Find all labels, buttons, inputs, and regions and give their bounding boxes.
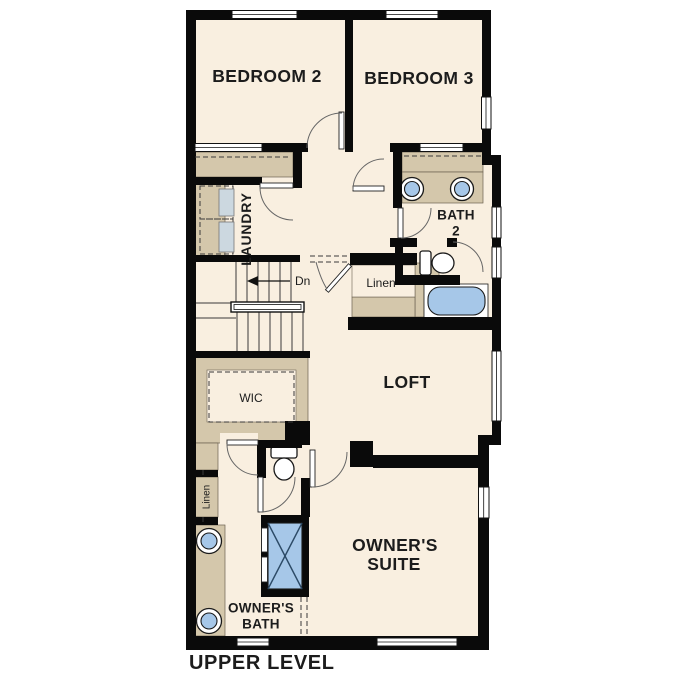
shower-door-panel-2 [262, 557, 268, 582]
wic-label: WIC [239, 391, 263, 405]
wall-loft-top [348, 317, 501, 330]
bedroom3-label: BEDROOM 3 [364, 68, 474, 88]
wall-linen-top [350, 253, 417, 265]
owners-sink-bottom-basin [201, 613, 217, 629]
wall-left [186, 10, 196, 650]
bedroom3-closet [402, 152, 483, 172]
bath2-tub [428, 287, 485, 315]
washer-panel [219, 189, 234, 216]
wall-bath2-nook-bottom [395, 275, 460, 285]
owners-toilet-tank [271, 447, 297, 458]
floorplan-svg: BEDROOM 2 BEDROOM 3 LAUNDRY BATH 2 Linen… [0, 0, 687, 687]
wall-obath-suite [301, 478, 310, 517]
door-leaf-laundry [260, 183, 293, 188]
wall-bath2-left [393, 152, 402, 208]
laundry-label: LAUNDRY [238, 192, 254, 266]
door-leaf-bedroom2 [339, 112, 344, 149]
bath2-toilet-bowl [432, 253, 454, 273]
wall-right-suite [478, 445, 489, 650]
bath2-toilet-tank [420, 251, 431, 275]
wall-bedroom-divider [345, 10, 353, 152]
owners-bath-label-line2: BATH [242, 617, 280, 632]
door-leaf-owners-suite [310, 450, 315, 487]
linen-hall-wall-bottom [352, 297, 415, 317]
wall-toilet-nook-top [266, 440, 302, 448]
wall-linen-owners-bottom [195, 517, 218, 525]
wall-bed3-bottom-left [390, 143, 420, 152]
owners-sink-top-basin [201, 533, 217, 549]
door-leaf-wic [227, 440, 258, 445]
bedroom2-closet [192, 152, 293, 177]
shower-door-panel-1 [262, 528, 268, 552]
door-leaf-bedroom3 [353, 186, 384, 191]
wall-right-step-bottom [478, 435, 501, 445]
stairs-dn-label: Dn [295, 274, 310, 288]
owners-hall-cabinet [195, 443, 218, 470]
owners-toilet-bowl [274, 458, 294, 480]
dryer-panel [219, 222, 234, 252]
owners-bath-label-line1: OWNER'S [228, 601, 294, 616]
wall-linen-owners-top [195, 470, 218, 477]
door-leaf-bath2 [398, 208, 403, 238]
wall-bed3-bottom-right [463, 143, 491, 152]
owners-suite-label-line1: OWNER'S [352, 535, 438, 555]
wall-stairs-bottom [190, 351, 310, 358]
bath2-label-line2: 2 [452, 224, 460, 239]
wall-right-bedroom3 [482, 10, 491, 165]
bedroom2-label: BEDROOM 2 [212, 66, 322, 86]
wall-closet2-bottom [190, 177, 262, 185]
bath2-sink-right-basin [455, 182, 470, 197]
wall-laundry-hall [293, 150, 302, 188]
stair-railing [231, 302, 304, 312]
door-leaf-owners-bath [258, 477, 263, 512]
wall-loft-suite [373, 455, 478, 468]
plan-title: UPPER LEVEL [189, 652, 335, 674]
owners-suite-label-line2: SUITE [367, 554, 421, 574]
floorplan-page: BEDROOM 2 BEDROOM 3 LAUNDRY BATH 2 Linen… [0, 0, 687, 687]
linen-hall-label: Linen [366, 276, 395, 290]
bath2-sink-left-basin [405, 182, 420, 197]
wall-loft-suite-chunk [350, 441, 373, 467]
wall-bath2-nook-top [390, 238, 417, 247]
loft-label: LOFT [383, 372, 430, 392]
linen-owners-label: Linen [202, 485, 213, 509]
bath2-label-line1: BATH [437, 208, 475, 223]
wall-toilet-nook-left [257, 440, 266, 478]
